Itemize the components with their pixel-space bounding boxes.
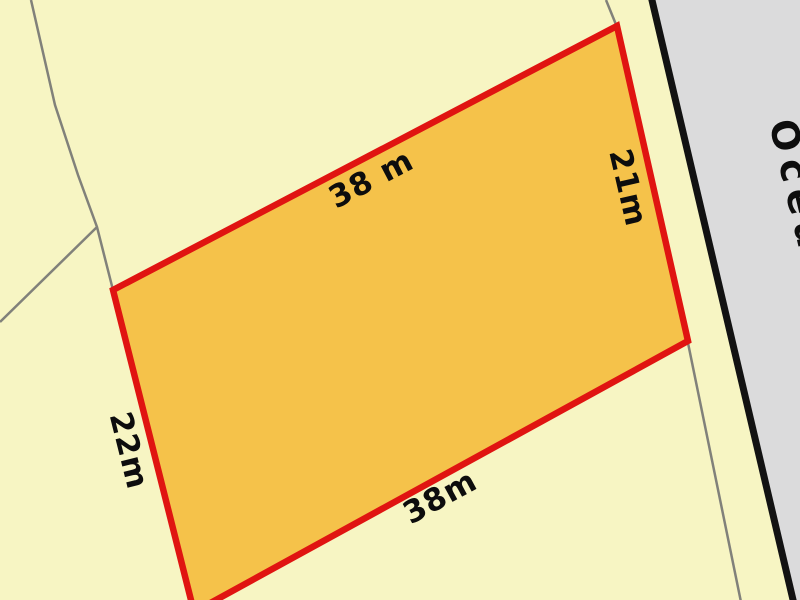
parcel-map-canvas: 38 m 21m 22m 38m Ocea (0, 0, 800, 600)
parcel-map: 38 m 21m 22m 38m Ocea (0, 0, 800, 600)
